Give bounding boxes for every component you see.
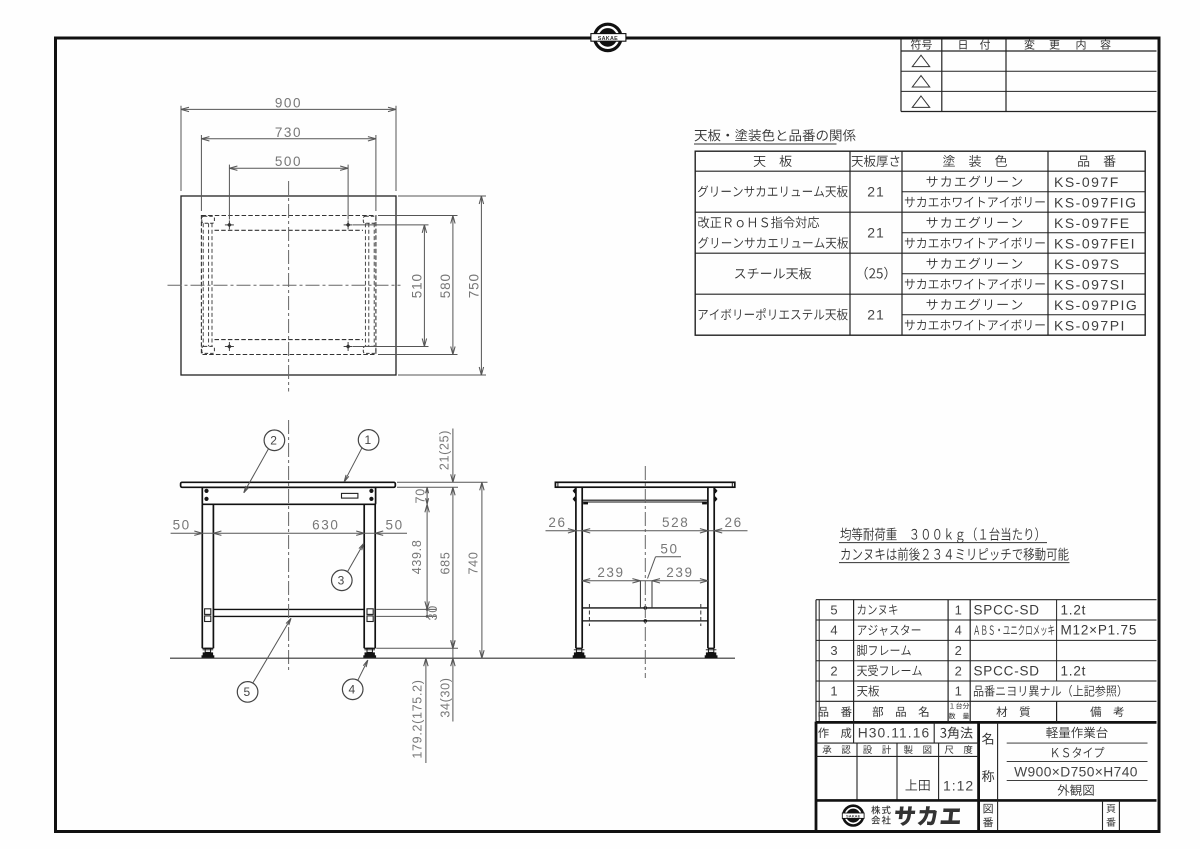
svg-text:5: 5 (830, 602, 839, 617)
svg-text:900: 900 (275, 95, 302, 110)
svg-text:SPCC-SD: SPCC-SD (974, 602, 1040, 617)
svg-text:5: 5 (243, 685, 251, 699)
svg-text:21(25): 21(25) (437, 430, 451, 470)
svg-text:1:12: 1:12 (943, 777, 974, 793)
svg-text:SAKAE: SAKAE (598, 36, 618, 42)
svg-text:M12×P1.75: M12×P1.75 (1061, 623, 1138, 638)
svg-text:750: 750 (467, 273, 482, 298)
svg-text:KS-097PIG: KS-097PIG (1054, 297, 1138, 313)
svg-text:KS-097PI: KS-097PI (1054, 317, 1126, 333)
svg-text:50: 50 (660, 542, 678, 557)
svg-text:70: 70 (413, 488, 427, 503)
svg-text:3: 3 (338, 574, 346, 588)
svg-text:KS-097FEI: KS-097FEI (1054, 235, 1136, 251)
svg-text:1.2t: 1.2t (1061, 602, 1087, 617)
svg-text:2: 2 (955, 643, 964, 658)
svg-text:1: 1 (955, 684, 964, 699)
svg-text:239: 239 (666, 565, 693, 580)
svg-text:4: 4 (830, 623, 839, 638)
svg-text:KS-097S: KS-097S (1054, 256, 1121, 272)
svg-text:4: 4 (349, 683, 357, 697)
svg-text:KS-097SI: KS-097SI (1054, 276, 1126, 292)
svg-text:630: 630 (312, 518, 339, 533)
svg-text:SPCC-SD: SPCC-SD (974, 663, 1040, 678)
svg-text:KS-097F: KS-097F (1054, 174, 1120, 190)
svg-text:1: 1 (955, 602, 964, 617)
svg-text:30: 30 (426, 605, 440, 620)
svg-text:26: 26 (548, 515, 566, 530)
svg-text:1.2t: 1.2t (1061, 663, 1087, 678)
svg-text:1: 1 (364, 433, 372, 447)
svg-text:685: 685 (439, 552, 453, 575)
svg-text:W900×D750×H740: W900×D750×H740 (1014, 764, 1138, 779)
svg-text:500: 500 (275, 154, 302, 169)
svg-text:34(30): 34(30) (438, 677, 452, 717)
svg-text:KS-097FIG: KS-097FIG (1054, 194, 1138, 210)
svg-text:26: 26 (724, 515, 742, 530)
svg-text:21: 21 (867, 184, 885, 200)
svg-text:50: 50 (385, 518, 403, 533)
svg-text:21: 21 (867, 225, 885, 241)
svg-text:510: 510 (410, 273, 425, 298)
svg-text:2: 2 (830, 663, 839, 678)
svg-text:179.2(175.2): 179.2(175.2) (410, 679, 424, 758)
svg-text:3: 3 (830, 643, 839, 658)
svg-text:740: 740 (467, 552, 481, 575)
svg-text:21: 21 (867, 307, 885, 323)
svg-text:SAKAE: SAKAE (846, 814, 861, 819)
svg-text:730: 730 (275, 125, 302, 140)
svg-text:580: 580 (438, 273, 453, 298)
svg-text:1: 1 (830, 684, 839, 699)
svg-text:H30.11.16: H30.11.16 (858, 725, 931, 740)
svg-text:528: 528 (662, 515, 689, 530)
svg-text:439.8: 439.8 (410, 540, 424, 575)
svg-text:4: 4 (955, 623, 964, 638)
svg-text:239: 239 (597, 565, 624, 580)
svg-text:2: 2 (270, 434, 278, 448)
svg-text:2: 2 (955, 663, 964, 678)
svg-text:50: 50 (173, 518, 191, 533)
svg-text:KS-097FE: KS-097FE (1054, 215, 1131, 231)
